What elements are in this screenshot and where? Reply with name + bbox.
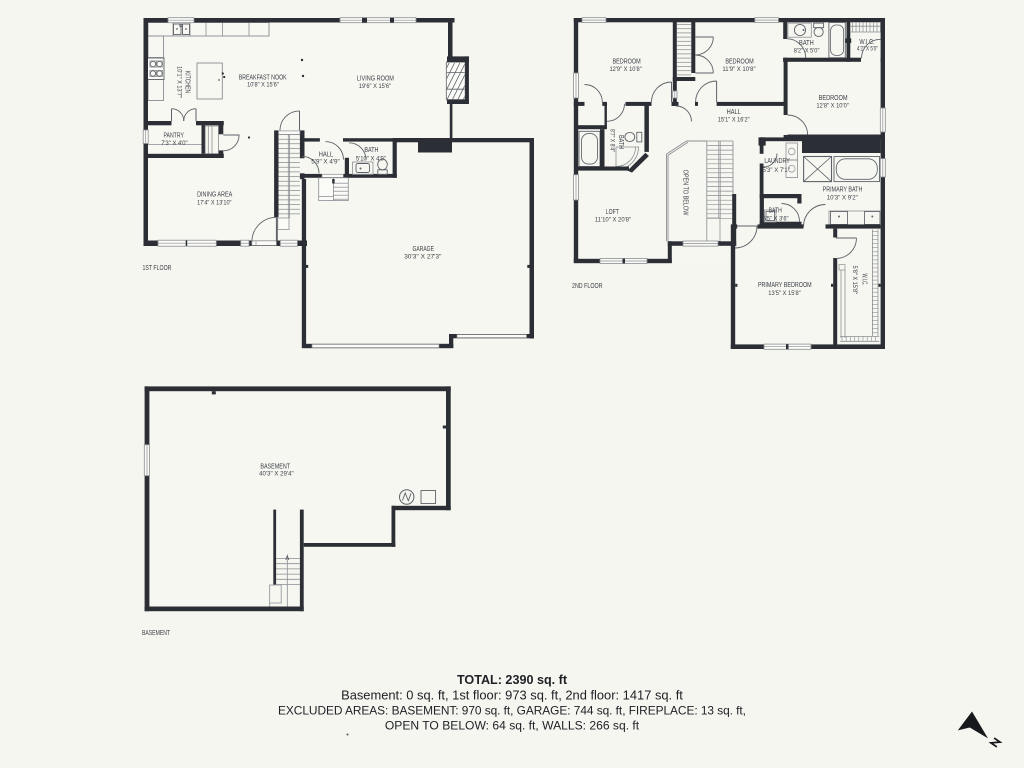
- svg-text:5'8" X 15'8": 5'8" X 15'8": [851, 266, 858, 295]
- svg-text:BATH: BATH: [617, 135, 624, 149]
- svg-text:PRIMARY BATH: PRIMARY BATH: [823, 185, 863, 194]
- svg-text:5'10" X 4'9": 5'10" X 4'9": [356, 155, 387, 162]
- svg-text:5'5" X 3'6": 5'5" X 3'6": [763, 215, 789, 222]
- svg-text:BASEMENT: BASEMENT: [142, 628, 170, 637]
- svg-text:W.I.C.: W.I.C.: [860, 274, 867, 286]
- svg-text:10'3" X 9'2": 10'3" X 9'2": [827, 194, 859, 201]
- svg-text:LOFT: LOFT: [606, 207, 620, 216]
- svg-text:BATH: BATH: [769, 208, 782, 215]
- svg-text:12'9" X 10'8": 12'9" X 10'8": [609, 66, 642, 73]
- svg-text:BEDROOM: BEDROOM: [819, 93, 848, 102]
- svg-text:OPEN TO BELOW: 64 sq. ft, WALL: OPEN TO BELOW: 64 sq. ft, WALLS: 266 sq.…: [385, 719, 640, 733]
- svg-text:HALL: HALL: [727, 107, 741, 116]
- svg-text:11'9" X 10'8": 11'9" X 10'8": [722, 66, 756, 73]
- svg-text:BATH: BATH: [364, 145, 378, 154]
- svg-text:DINING AREA: DINING AREA: [197, 189, 232, 198]
- svg-text:12'8" X 10'0": 12'8" X 10'0": [816, 102, 849, 109]
- svg-text:KITCHEN: KITCHEN: [183, 71, 192, 93]
- svg-text:BEDROOM: BEDROOM: [612, 56, 640, 65]
- svg-text:BEDROOM: BEDROOM: [725, 56, 753, 65]
- svg-text:10'8" X 15'6": 10'8" X 15'6": [247, 82, 279, 89]
- svg-text:2ND FLOOR: 2ND FLOOR: [572, 281, 603, 290]
- svg-text:HALL: HALL: [319, 150, 334, 159]
- svg-text:17'4" X 13'10": 17'4" X 13'10": [197, 199, 232, 206]
- svg-text:4'2" X 5'0": 4'2" X 5'0": [857, 46, 878, 53]
- svg-text:TOTAL: 2390 sq. ft: TOTAL: 2390 sq. ft: [457, 673, 568, 687]
- svg-text:5'9" X 4'9": 5'9" X 4'9": [311, 159, 340, 166]
- svg-text:PANTRY: PANTRY: [163, 131, 184, 140]
- svg-text:30'3" X 27'3": 30'3" X 27'3": [404, 253, 442, 260]
- svg-text:LAUNDRY: LAUNDRY: [764, 158, 790, 165]
- svg-text:40'3" X 29'4": 40'3" X 29'4": [259, 471, 294, 478]
- svg-text:PRIMARY BEDROOM: PRIMARY BEDROOM: [758, 280, 812, 289]
- svg-text:EXCLUDED AREAS: BASEMENT: 970: EXCLUDED AREAS: BASEMENT: 970 sq. ft, GA…: [278, 704, 746, 718]
- svg-text:LIVING ROOM: LIVING ROOM: [357, 74, 394, 83]
- svg-text:GARAGE: GARAGE: [412, 244, 434, 253]
- svg-text:BASEMENT: BASEMENT: [260, 462, 290, 471]
- svg-text:BREAKFAST NOOK: BREAKFAST NOOK: [239, 72, 287, 81]
- svg-text:5'3" X 7'1": 5'3" X 7'1": [763, 167, 790, 174]
- svg-text:8'2" X 5'0": 8'2" X 5'0": [794, 47, 820, 54]
- svg-text:13'5" X 15'8": 13'5" X 15'8": [768, 290, 801, 297]
- svg-text:11'10" X 20'8": 11'10" X 20'8": [595, 216, 632, 223]
- svg-text:15'1" X 16'2": 15'1" X 16'2": [718, 117, 750, 124]
- svg-text:7'3" X 4'0": 7'3" X 4'0": [161, 140, 188, 147]
- svg-text:BATH: BATH: [799, 40, 814, 47]
- svg-text:10'1" X 13'7": 10'1" X 13'7": [175, 66, 182, 98]
- svg-text:OPEN TO BELOW: OPEN TO BELOW: [681, 170, 690, 216]
- svg-text:19'6" X 15'6": 19'6" X 15'6": [359, 83, 392, 90]
- svg-text:Basement: 0 sq. ft, 1st floor:: Basement: 0 sq. ft, 1st floor: 973 sq. f…: [341, 688, 683, 703]
- svg-text:1ST FLOOR: 1ST FLOOR: [143, 263, 172, 272]
- svg-text:8'7" X 8'4": 8'7" X 8'4": [608, 129, 615, 152]
